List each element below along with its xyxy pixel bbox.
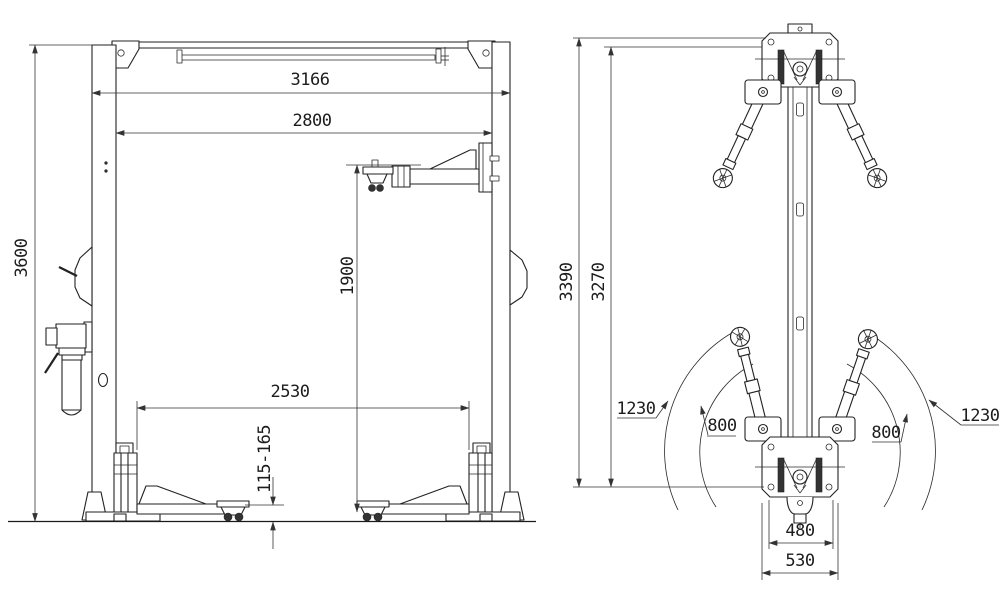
callout-800-right: 800 [871, 414, 907, 443]
dim-label-1230-left: 1230 [617, 399, 656, 419]
dim-label-3600: 3600 [12, 238, 32, 277]
dim-overall-width: 3166 [92, 70, 510, 93]
technical-drawing-two-post-lift: 3600 3166 2800 1900 2530 115-165 [0, 0, 1000, 592]
oil-reservoir [62, 360, 81, 410]
callout-1230-left: 1230 [617, 399, 668, 419]
dim-inside-width: 2800 [116, 111, 492, 133]
power-unit [45, 322, 92, 415]
raised-arm [363, 143, 499, 192]
dim-label-3390: 3390 [557, 262, 577, 301]
release-handle [45, 353, 58, 373]
dim-label-1230-right: 1230 [961, 406, 1000, 426]
dim-label-800-right: 800 [871, 423, 900, 443]
overhead-safety-bar [181, 55, 435, 60]
callout-1230-right: 1230 [929, 400, 1000, 426]
dim-label-3166: 3166 [291, 70, 330, 90]
top-beam [112, 41, 495, 68]
right-column [492, 42, 510, 512]
front-view: 3600 3166 2800 1900 2530 115-165 [8, 41, 536, 549]
drawing-canvas: 3600 3166 2800 1900 2530 115-165 [0, 0, 1000, 592]
plan-view: 3390 3270 1230 800 800 1230 [557, 24, 1000, 580]
dim-label-3270: 3270 [589, 262, 609, 301]
dim-label-800-left: 800 [707, 416, 736, 436]
dim-label-1900: 1900 [338, 256, 358, 295]
callout-800-left: 800 [701, 406, 737, 436]
dim-pad-height: 115-165 [245, 425, 284, 549]
left-column-cover [75, 247, 92, 306]
left-column [92, 45, 116, 512]
column-post [788, 87, 812, 437]
dim-label-530: 530 [785, 551, 814, 571]
dim-between-carriages: 2530 [137, 382, 469, 450]
dim-lift-height: 1900 [338, 165, 421, 512]
right-column-cover [510, 250, 527, 305]
dim-label-2530: 2530 [271, 382, 310, 402]
dim-label-2800: 2800 [293, 111, 332, 131]
dim-label-480: 480 [785, 521, 814, 541]
motor-box [56, 324, 86, 348]
dim-label-115-165: 115-165 [255, 425, 275, 493]
